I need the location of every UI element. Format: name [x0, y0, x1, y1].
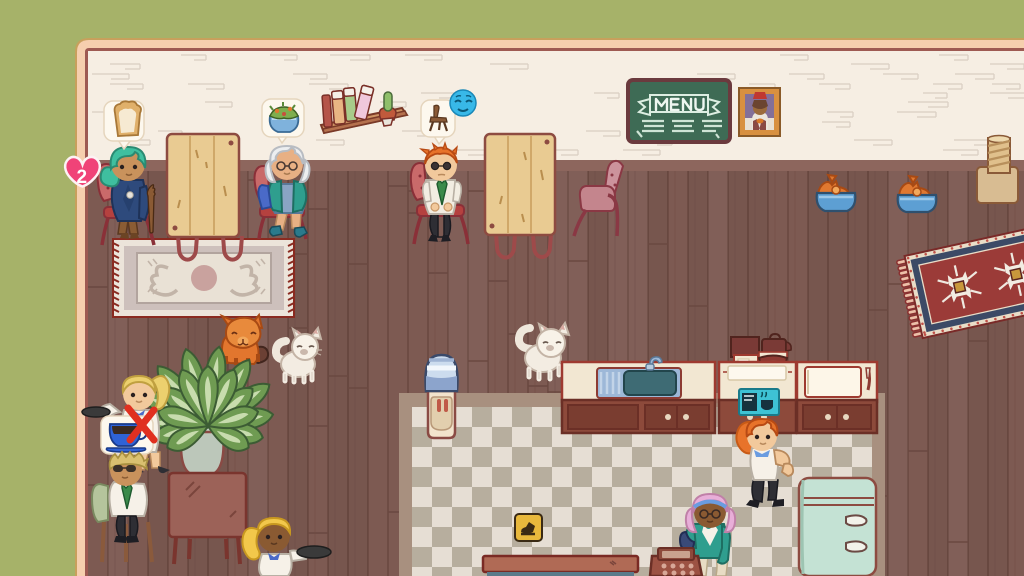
svg-text:2: 2	[77, 167, 88, 188]
